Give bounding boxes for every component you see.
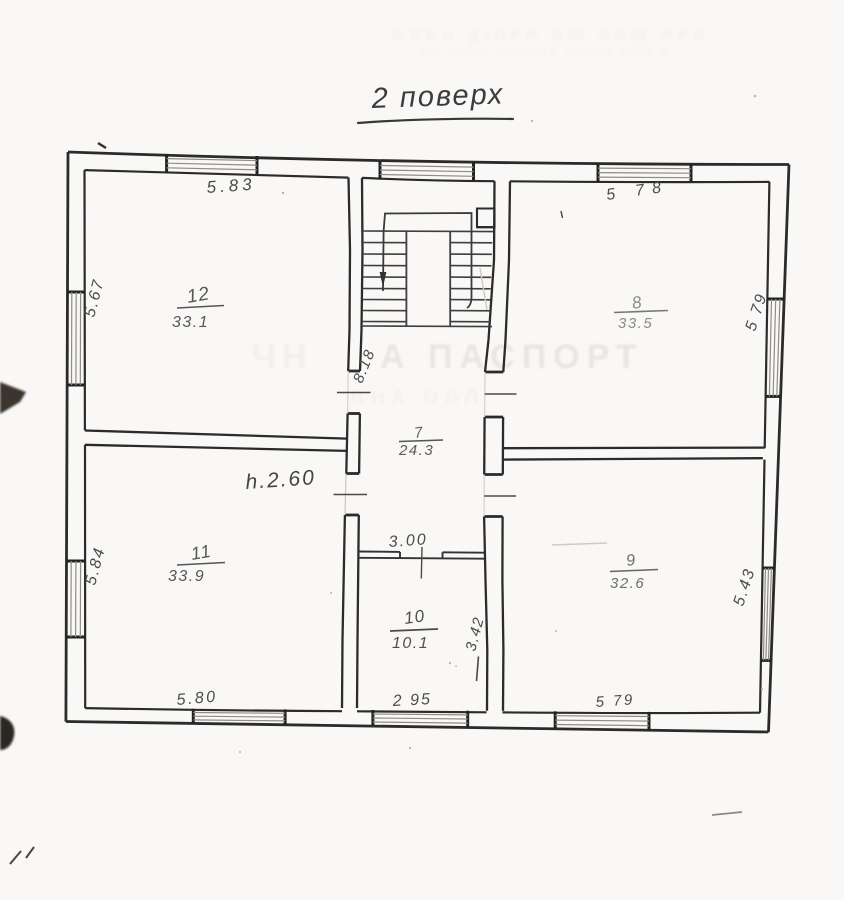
svg-text:А ПАСПОРТ: А ПАСПОРТ bbox=[380, 338, 644, 376]
svg-text:5.83: 5.83 bbox=[206, 175, 256, 197]
svg-text:10: 10 bbox=[403, 606, 426, 628]
svg-text:ВНА ОБЛ: ВНА ОБЛ bbox=[350, 387, 484, 409]
svg-text:10.1: 10.1 bbox=[392, 635, 429, 652]
svg-text:h.2.60: h.2.60 bbox=[245, 466, 317, 494]
svg-text:2 95: 2 95 bbox=[391, 691, 432, 710]
svg-text:ЧН: ЧН bbox=[252, 338, 312, 376]
svg-text:33.1: 33.1 bbox=[172, 314, 209, 331]
svg-text:2 поверх: 2 поверх bbox=[370, 78, 505, 115]
svg-text:33.9: 33.9 bbox=[168, 568, 205, 585]
svg-text:12: 12 bbox=[185, 283, 211, 308]
svg-text:32.6: 32.6 bbox=[610, 575, 645, 592]
svg-text:МЛВН ДІПРН ВЮ ПЛШ НРВ: МЛВН ДІПРН ВЮ ПЛШ НРВ bbox=[392, 27, 710, 44]
svg-text:11: 11 bbox=[189, 541, 213, 564]
svg-text:33.5: 33.5 bbox=[618, 315, 653, 332]
svg-text:24.3: 24.3 bbox=[398, 442, 434, 459]
svg-text:ПН ДЕРЖ РЕЄСТР ПІДПР НВП О: ПН ДЕРЖ РЕЄСТР ПІДПР НВП О bbox=[420, 46, 672, 58]
svg-text:5 79: 5 79 bbox=[595, 691, 635, 711]
svg-text:5.80: 5.80 bbox=[176, 688, 218, 709]
